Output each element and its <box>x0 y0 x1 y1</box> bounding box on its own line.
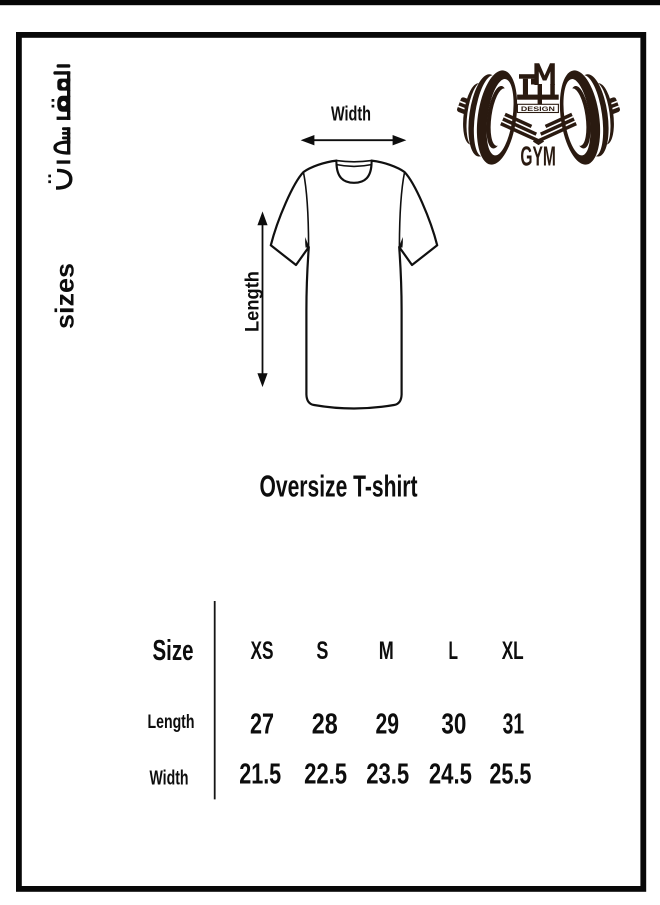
svg-text:Width: Width <box>331 104 371 126</box>
svg-text:Length: Length <box>148 712 195 733</box>
svg-text:S: S <box>316 637 328 665</box>
svg-text:30: 30 <box>441 709 466 741</box>
svg-text:Size: Size <box>153 635 194 667</box>
svg-text:29: 29 <box>376 709 400 741</box>
svg-text:21.5: 21.5 <box>239 759 281 791</box>
svg-text:27: 27 <box>250 709 274 741</box>
svg-text:24.5: 24.5 <box>429 759 472 791</box>
svg-text:Oversize T-shirt: Oversize T-shirt <box>260 470 418 504</box>
svg-text:23.5: 23.5 <box>366 759 409 791</box>
svg-text:XS: XS <box>251 637 274 665</box>
svg-text:31: 31 <box>503 709 525 741</box>
svg-text:DESIGN: DESIGN <box>521 107 555 113</box>
svg-text:22.5: 22.5 <box>304 759 347 791</box>
svg-text:25.5: 25.5 <box>489 759 531 791</box>
svg-text:M: M <box>379 637 394 665</box>
svg-text:GYM: GYM <box>520 141 556 172</box>
svg-text:28: 28 <box>312 709 338 741</box>
svg-text:L: L <box>449 637 459 665</box>
svg-text:Length: Length <box>242 271 263 332</box>
svg-text:Width: Width <box>150 768 189 790</box>
svg-text:sizes: sizes <box>49 263 79 329</box>
svg-text:XL: XL <box>502 637 524 665</box>
